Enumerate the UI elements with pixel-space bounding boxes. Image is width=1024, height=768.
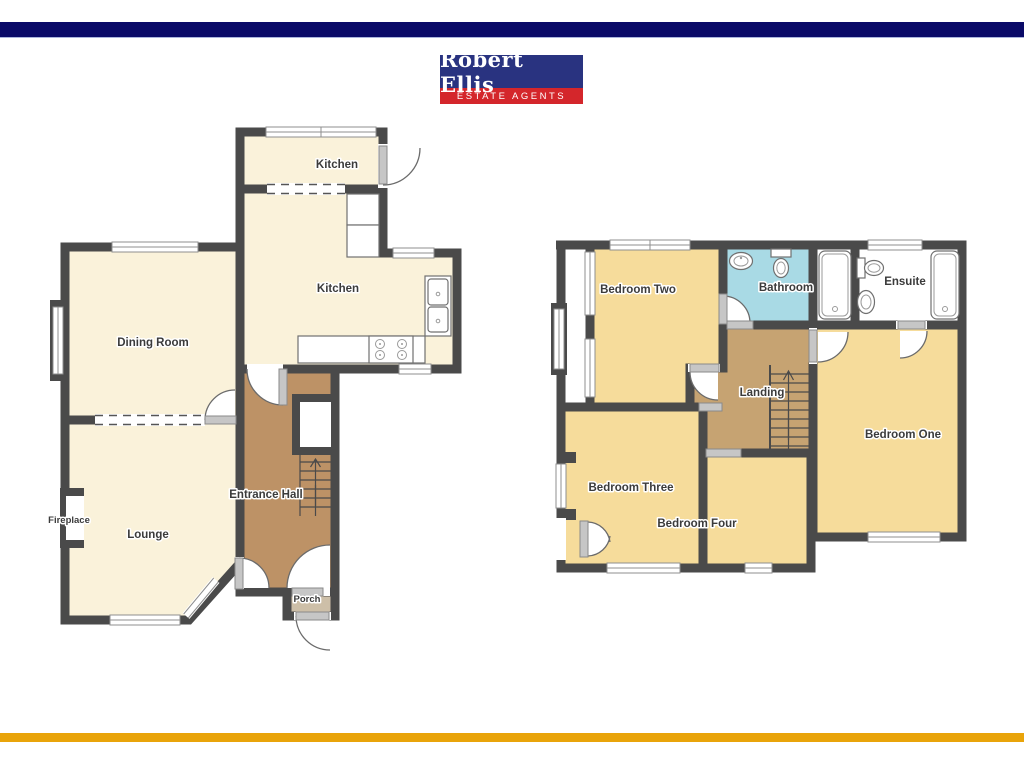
window-bedroom-four-bottom bbox=[745, 563, 772, 573]
window-kitchen-top bbox=[266, 127, 376, 137]
label-bedroom-three: Bedroom Three bbox=[589, 482, 674, 494]
window-bedroom-three-bottom bbox=[607, 563, 680, 573]
door-kitchen-exterior bbox=[378, 144, 420, 188]
bathroom-sink-icon bbox=[730, 253, 753, 270]
label-dining-room: Dining Room bbox=[117, 337, 189, 349]
door-porch-exterior bbox=[294, 612, 331, 650]
room-lounge bbox=[65, 420, 240, 620]
window-outer-bay bbox=[551, 303, 567, 375]
label-bathroom: Bathroom bbox=[759, 282, 813, 294]
ensuite-sink-icon bbox=[858, 291, 875, 314]
window-kitchen-bottom bbox=[399, 364, 431, 374]
window-dining-bay bbox=[50, 300, 66, 381]
window-kitchen-right-top bbox=[393, 248, 434, 258]
label-bedroom-one: Bedroom One bbox=[865, 429, 941, 441]
sink-icon bbox=[428, 279, 448, 332]
ground-floor-plan: Kitchen Kitchen Dining Room Lounge Entra… bbox=[48, 127, 457, 650]
ensuite-bathtub-icon bbox=[931, 251, 959, 319]
label-landing: Landing bbox=[740, 387, 785, 399]
label-ensuite: Ensuite bbox=[884, 276, 926, 288]
window-bedroom-one-bottom bbox=[868, 532, 940, 542]
window-ensuite-top bbox=[868, 240, 922, 250]
room-dining bbox=[65, 247, 240, 420]
label-kitchen-top: Kitchen bbox=[316, 159, 358, 171]
label-bedroom-four: Bedroom Four bbox=[657, 518, 737, 530]
label-fireplace: Fireplace bbox=[48, 515, 90, 526]
opening-kitchen-dashed bbox=[267, 183, 345, 195]
floorplan-canvas: Kitchen Kitchen Dining Room Lounge Entra… bbox=[0, 0, 1024, 768]
label-bedroom-two: Bedroom Two bbox=[600, 284, 676, 296]
window-dining-top bbox=[112, 242, 198, 252]
room-bedroom-four bbox=[703, 453, 811, 568]
window-lounge-bottom bbox=[110, 615, 180, 625]
hob-icon bbox=[369, 336, 413, 363]
label-porch: Porch bbox=[294, 594, 321, 605]
label-kitchen: Kitchen bbox=[317, 283, 359, 295]
window-bedroom-two-top bbox=[610, 240, 690, 250]
threshold-bedroom-three bbox=[699, 403, 722, 411]
label-entrance-hall: Entrance Hall bbox=[229, 489, 303, 501]
bathroom-bathtub-icon bbox=[819, 251, 851, 319]
first-floor-plan: Bedroom Two Bathroom Ensuite Landing Bed… bbox=[551, 240, 962, 573]
room-kitchen-top bbox=[240, 132, 383, 189]
label-lounge: Lounge bbox=[127, 529, 169, 541]
hall-void bbox=[296, 398, 335, 451]
threshold-bedroom-four bbox=[706, 449, 741, 457]
opening-dining-lounge-dashed bbox=[95, 414, 205, 426]
